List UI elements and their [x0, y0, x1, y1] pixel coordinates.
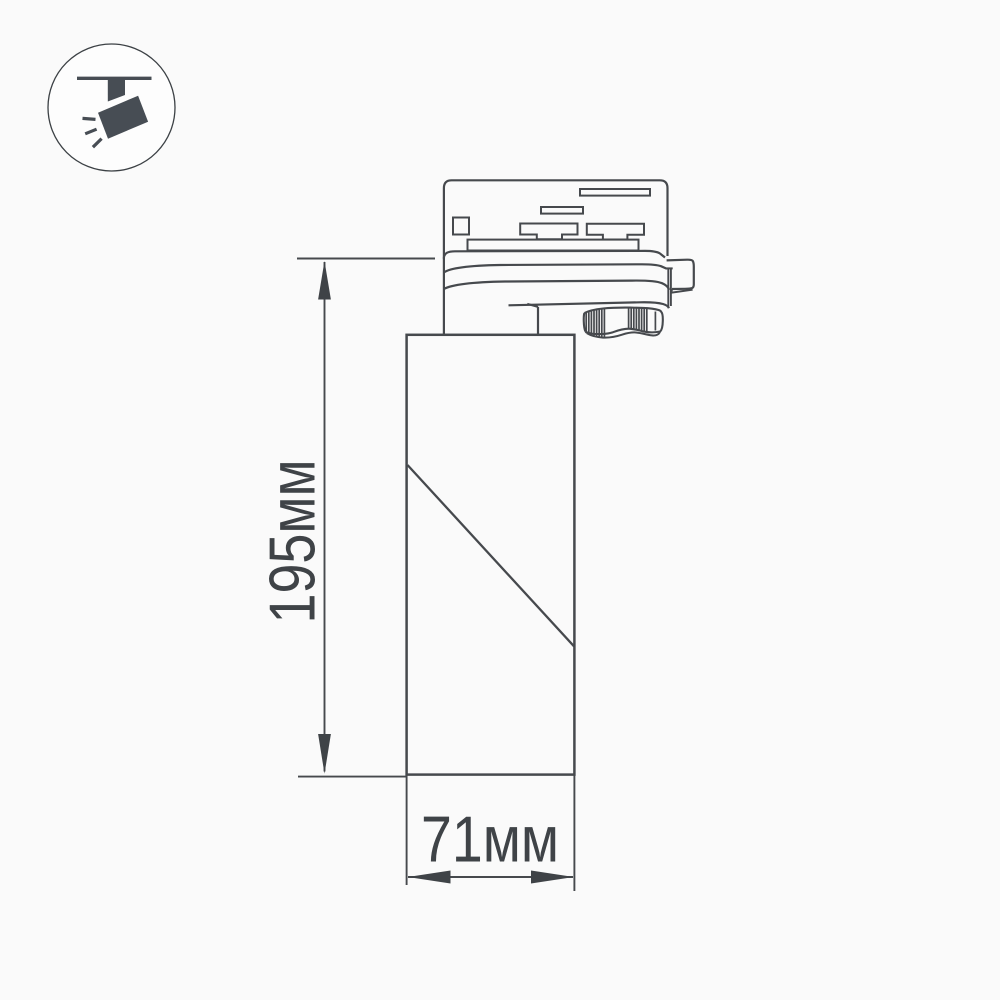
svg-text:71мм: 71мм: [421, 803, 559, 876]
svg-text:195мм: 195мм: [256, 460, 329, 624]
